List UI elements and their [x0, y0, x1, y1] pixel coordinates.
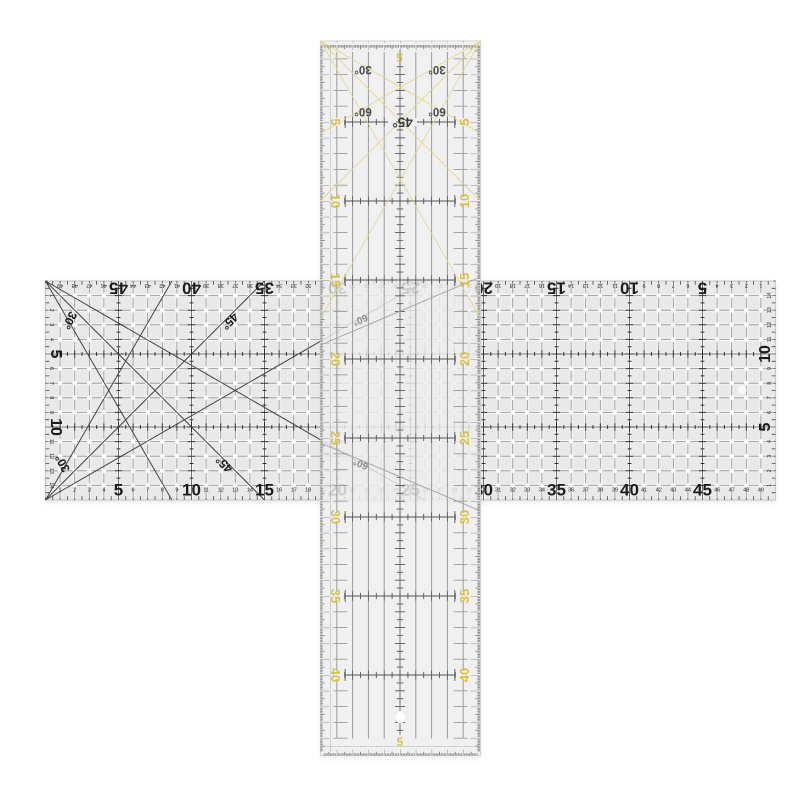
- svg-text:35: 35: [457, 589, 472, 603]
- svg-text:28: 28: [325, 483, 330, 488]
- svg-text:33: 33: [473, 561, 478, 566]
- svg-text:44: 44: [685, 487, 691, 493]
- svg-text:43: 43: [473, 719, 478, 724]
- svg-text:19: 19: [495, 282, 501, 288]
- svg-text:34: 34: [276, 282, 282, 288]
- svg-text:18: 18: [510, 282, 516, 288]
- svg-text:48: 48: [72, 282, 78, 288]
- svg-text:45: 45: [693, 481, 712, 500]
- svg-text:32: 32: [510, 487, 516, 493]
- svg-text:34: 34: [539, 487, 545, 493]
- svg-text:4: 4: [716, 282, 719, 288]
- svg-text:44: 44: [130, 282, 136, 288]
- svg-text:12: 12: [473, 230, 478, 235]
- svg-text:43: 43: [670, 487, 676, 493]
- svg-text:48: 48: [743, 487, 749, 493]
- svg-text:15: 15: [547, 279, 566, 298]
- svg-text:15: 15: [328, 273, 343, 287]
- svg-text:49: 49: [758, 487, 764, 493]
- svg-text:18: 18: [305, 487, 311, 493]
- svg-text:12: 12: [48, 453, 54, 459]
- svg-text:45°: 45°: [392, 115, 412, 130]
- svg-text:14: 14: [247, 487, 253, 493]
- svg-text:11: 11: [48, 439, 54, 445]
- svg-text:29: 29: [473, 498, 478, 503]
- svg-text:31: 31: [325, 530, 330, 535]
- svg-text:40: 40: [620, 481, 639, 500]
- svg-text:39: 39: [203, 282, 209, 288]
- svg-text:11: 11: [473, 214, 478, 219]
- svg-text:10: 10: [182, 481, 201, 500]
- svg-text:32: 32: [305, 282, 311, 288]
- svg-text:43: 43: [325, 720, 330, 725]
- svg-text:47: 47: [729, 487, 735, 493]
- svg-text:9: 9: [175, 487, 178, 493]
- svg-text:37: 37: [325, 625, 330, 630]
- svg-text:36: 36: [568, 487, 574, 493]
- svg-text:34: 34: [325, 578, 330, 583]
- svg-text:13: 13: [232, 487, 238, 493]
- svg-text:2: 2: [48, 309, 54, 312]
- svg-text:41: 41: [174, 282, 180, 288]
- svg-text:40: 40: [182, 279, 201, 298]
- svg-text:29: 29: [325, 499, 330, 504]
- svg-text:3: 3: [88, 487, 91, 493]
- svg-text:11: 11: [612, 282, 618, 288]
- svg-text:21: 21: [325, 372, 330, 377]
- svg-text:41: 41: [641, 487, 647, 493]
- svg-text:10: 10: [457, 194, 472, 208]
- svg-text:12: 12: [597, 282, 603, 288]
- svg-text:2: 2: [767, 469, 773, 472]
- svg-text:10: 10: [757, 345, 774, 363]
- svg-text:5: 5: [457, 118, 472, 125]
- svg-text:18: 18: [325, 325, 330, 330]
- svg-text:44: 44: [325, 736, 330, 741]
- svg-text:31: 31: [473, 530, 478, 535]
- svg-text:16: 16: [276, 487, 282, 493]
- svg-text:22: 22: [473, 388, 478, 393]
- svg-text:35: 35: [547, 481, 566, 500]
- svg-text:1: 1: [767, 484, 773, 487]
- svg-text:12: 12: [325, 230, 330, 235]
- svg-text:17: 17: [325, 309, 330, 314]
- svg-text:4: 4: [102, 487, 105, 493]
- svg-text:30°: 30°: [428, 63, 446, 75]
- svg-text:17: 17: [473, 309, 478, 314]
- svg-text:6: 6: [686, 282, 689, 288]
- svg-text:19: 19: [473, 340, 478, 345]
- svg-text:17: 17: [524, 282, 530, 288]
- svg-text:46: 46: [714, 487, 720, 493]
- svg-text:14: 14: [568, 282, 574, 288]
- svg-text:33: 33: [325, 562, 330, 567]
- svg-text:5: 5: [47, 350, 64, 359]
- svg-text:47: 47: [86, 282, 92, 288]
- svg-text:22: 22: [325, 388, 330, 393]
- svg-text:42: 42: [325, 704, 330, 709]
- svg-text:17: 17: [291, 487, 297, 493]
- svg-text:27: 27: [473, 467, 478, 472]
- svg-text:3: 3: [767, 455, 773, 458]
- svg-text:36: 36: [247, 282, 253, 288]
- svg-text:25: 25: [457, 431, 472, 445]
- svg-text:30: 30: [328, 510, 343, 524]
- svg-text:28: 28: [473, 482, 478, 487]
- svg-text:38: 38: [473, 640, 478, 645]
- svg-text:14: 14: [767, 292, 773, 298]
- svg-text:5: 5: [396, 50, 403, 64]
- svg-text:20: 20: [457, 352, 472, 366]
- svg-text:10: 10: [47, 418, 64, 436]
- svg-text:44: 44: [473, 735, 478, 740]
- svg-text:7: 7: [146, 487, 149, 493]
- svg-text:16: 16: [539, 282, 545, 288]
- svg-text:3: 3: [730, 282, 733, 288]
- svg-text:24: 24: [473, 419, 478, 424]
- svg-text:13: 13: [48, 468, 54, 474]
- svg-text:23: 23: [325, 404, 330, 409]
- svg-text:5: 5: [114, 481, 123, 500]
- svg-text:36: 36: [473, 609, 478, 614]
- svg-text:12: 12: [767, 322, 773, 328]
- svg-text:5: 5: [698, 279, 707, 298]
- svg-text:32: 32: [473, 546, 478, 551]
- svg-text:36: 36: [325, 609, 330, 614]
- svg-text:41: 41: [325, 688, 330, 693]
- svg-text:38: 38: [325, 641, 330, 646]
- svg-text:11: 11: [325, 215, 330, 220]
- svg-text:39: 39: [612, 487, 618, 493]
- svg-text:21: 21: [473, 372, 478, 377]
- svg-text:31: 31: [495, 487, 501, 493]
- svg-text:32: 32: [325, 546, 330, 551]
- svg-text:26: 26: [325, 451, 330, 456]
- svg-text:14: 14: [473, 261, 478, 266]
- svg-text:33: 33: [291, 282, 297, 288]
- svg-text:38: 38: [218, 282, 224, 288]
- svg-text:6: 6: [132, 487, 135, 493]
- svg-text:23: 23: [473, 403, 478, 408]
- svg-text:60°: 60°: [354, 105, 372, 117]
- svg-text:25: 25: [328, 431, 343, 445]
- svg-text:37: 37: [583, 487, 589, 493]
- svg-text:37: 37: [232, 282, 238, 288]
- svg-text:27: 27: [325, 467, 330, 472]
- svg-text:24: 24: [325, 420, 330, 425]
- svg-text:9: 9: [48, 411, 54, 414]
- svg-text:8: 8: [48, 396, 54, 399]
- svg-text:4: 4: [767, 440, 773, 443]
- svg-text:1: 1: [759, 282, 762, 288]
- svg-text:8: 8: [161, 487, 164, 493]
- svg-text:2: 2: [73, 487, 76, 493]
- svg-text:1: 1: [48, 294, 54, 297]
- svg-text:8: 8: [767, 382, 773, 385]
- svg-text:15: 15: [457, 273, 472, 287]
- svg-text:19: 19: [325, 341, 330, 346]
- svg-text:9: 9: [767, 367, 773, 370]
- svg-text:5: 5: [397, 735, 404, 749]
- svg-text:10: 10: [620, 279, 639, 298]
- svg-text:7: 7: [672, 282, 675, 288]
- svg-text:30°: 30°: [354, 63, 372, 75]
- svg-text:13: 13: [325, 246, 330, 251]
- svg-text:42: 42: [473, 704, 478, 709]
- svg-text:6: 6: [767, 411, 773, 414]
- svg-text:1: 1: [59, 487, 62, 493]
- svg-text:18: 18: [473, 324, 478, 329]
- svg-text:34: 34: [473, 577, 478, 582]
- svg-text:3: 3: [48, 323, 54, 326]
- svg-text:37: 37: [473, 625, 478, 630]
- svg-text:11: 11: [203, 487, 209, 493]
- svg-text:43: 43: [145, 282, 151, 288]
- svg-text:40: 40: [328, 668, 343, 682]
- svg-text:14: 14: [48, 482, 54, 488]
- svg-text:49: 49: [57, 282, 63, 288]
- svg-text:20: 20: [328, 352, 343, 366]
- svg-text:6: 6: [48, 367, 54, 370]
- svg-text:10: 10: [328, 194, 343, 208]
- svg-text:5: 5: [757, 422, 774, 431]
- svg-text:26: 26: [473, 451, 478, 456]
- svg-text:4: 4: [48, 338, 54, 341]
- svg-text:7: 7: [48, 382, 54, 385]
- svg-text:42: 42: [159, 282, 165, 288]
- svg-text:39: 39: [473, 656, 478, 661]
- svg-text:13: 13: [583, 282, 589, 288]
- svg-text:8: 8: [657, 282, 660, 288]
- svg-text:33: 33: [524, 487, 530, 493]
- svg-text:16: 16: [473, 293, 478, 298]
- svg-text:11: 11: [767, 336, 773, 342]
- svg-text:45: 45: [109, 279, 128, 298]
- svg-text:46: 46: [101, 282, 107, 288]
- svg-text:41: 41: [473, 688, 478, 693]
- svg-text:9: 9: [643, 282, 646, 288]
- svg-text:14: 14: [325, 262, 330, 267]
- svg-text:12: 12: [218, 487, 224, 493]
- svg-text:39: 39: [325, 657, 330, 662]
- svg-text:2: 2: [745, 282, 748, 288]
- svg-text:38: 38: [597, 487, 603, 493]
- svg-text:35: 35: [328, 589, 343, 603]
- svg-text:60°: 60°: [428, 105, 446, 117]
- svg-text:40: 40: [457, 668, 472, 682]
- svg-text:30: 30: [457, 510, 472, 524]
- svg-text:35: 35: [255, 279, 274, 298]
- svg-text:15: 15: [255, 481, 274, 500]
- svg-text:16: 16: [325, 293, 330, 298]
- svg-text:42: 42: [656, 487, 662, 493]
- svg-text:13: 13: [767, 307, 773, 313]
- svg-text:7: 7: [767, 396, 773, 399]
- svg-text:13: 13: [473, 245, 478, 250]
- svg-text:5: 5: [328, 118, 343, 125]
